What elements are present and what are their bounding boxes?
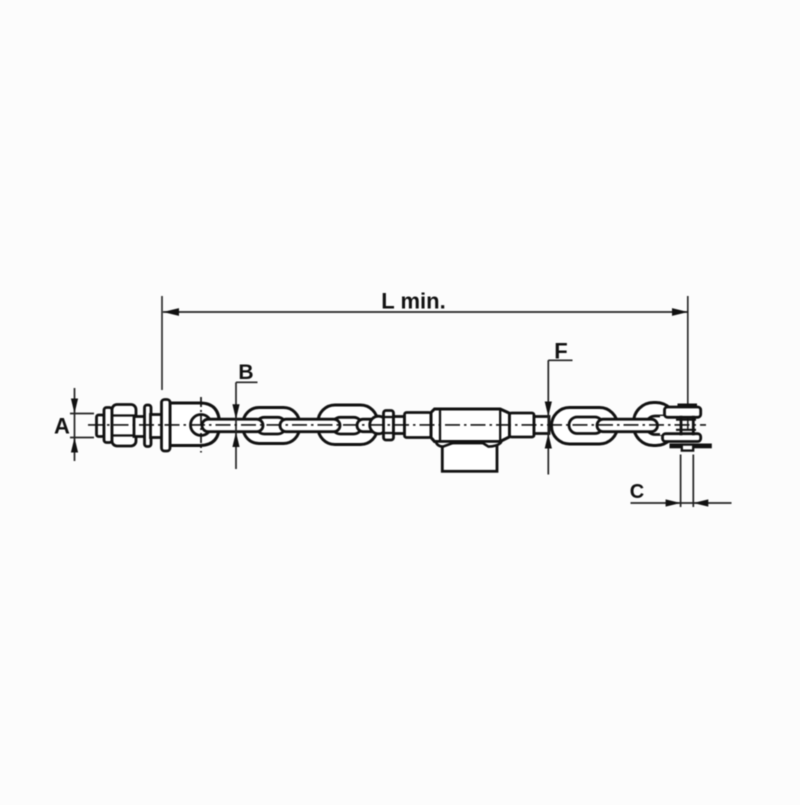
- svg-text:B: B: [238, 361, 253, 384]
- svg-text:C: C: [630, 481, 644, 503]
- svg-text:L min.: L min.: [381, 289, 445, 314]
- svg-text:A: A: [54, 414, 70, 439]
